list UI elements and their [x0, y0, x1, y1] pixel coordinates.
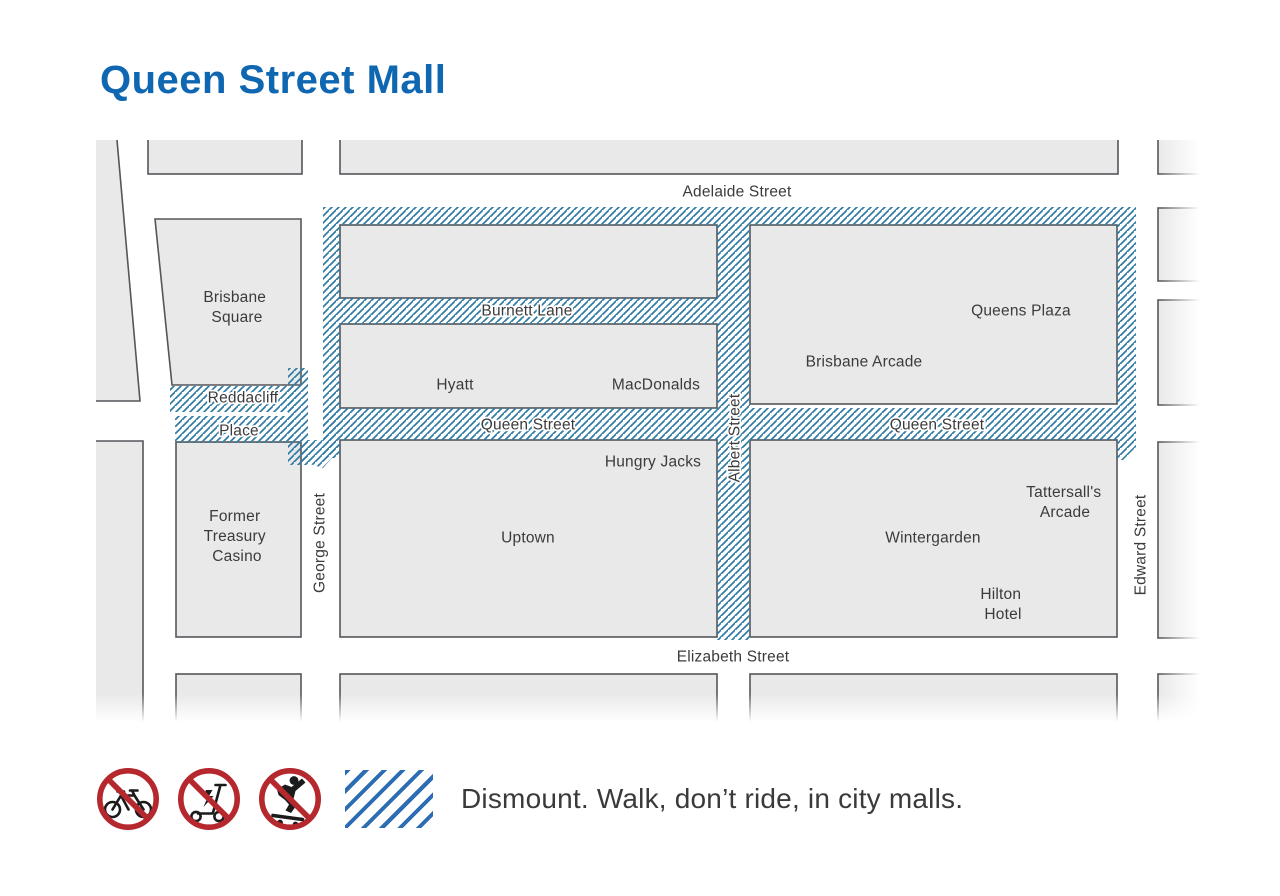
label-elizabeth-street: Elizabeth Street [677, 649, 790, 666]
mall-hatch-reddacliff-tail [288, 368, 308, 465]
label-macdonalds: MacDonalds [612, 377, 700, 394]
mall-hatch-adelaide-band [323, 207, 1136, 225]
block-north-adelaide-west [148, 130, 302, 174]
label-brisbane-arcade: Brisbane Arcade [806, 354, 923, 371]
label-reddacliff: Reddacliff [208, 390, 279, 407]
label-uptown: Uptown [501, 530, 555, 547]
mall-hatch-east-tail [1117, 440, 1136, 460]
legend: Dismount. Walk, don’t ride, in city mall… [95, 766, 963, 832]
label-adelaide-street: Adelaide Street [683, 184, 792, 201]
no-e-scooter-icon [176, 766, 242, 832]
label-albert-street: Albert Street [727, 393, 744, 482]
label-reddacliff-place: Place [219, 423, 259, 440]
block-north-adelaide-main [340, 130, 1118, 174]
legend-text: Dismount. Walk, don’t ride, in city mall… [461, 783, 963, 815]
queen-street-mall-map: Adelaide Street Elizabeth Street Burnett… [0, 0, 1280, 896]
page: Adelaide Street Elizabeth Street Burnett… [0, 0, 1280, 896]
label-burnett-lane: Burnett Lane [481, 303, 572, 320]
label-edward-street: Edward Street [1133, 494, 1150, 595]
dismount-zone-hatch-swatch [345, 770, 433, 828]
map-fade-bottom [96, 694, 1200, 722]
label-hungry-jacks: Hungry Jacks [605, 454, 701, 471]
mall-hatch-east-column [1117, 225, 1136, 408]
no-bicycle-icon [95, 766, 161, 832]
label-george-street: George Street [312, 493, 329, 593]
label-queen-street-west: Queen Street [481, 417, 576, 434]
label-queen-street-east: Queen Street [890, 417, 985, 434]
label-queens-plaza: Queens Plaza [971, 303, 1071, 320]
no-skateboard-icon [257, 766, 323, 832]
block-hyatt-macdonalds [340, 324, 717, 408]
label-former-treasury-casino: Former Treasury Casino [204, 508, 271, 565]
page-title: Queen Street Mall [100, 58, 446, 103]
block-north-of-burnett [340, 225, 717, 298]
label-hyatt: Hyatt [436, 377, 474, 394]
block-river-edge-lower [90, 441, 143, 722]
label-wintergarden: Wintergarden [885, 530, 980, 547]
map-fade-right [1158, 140, 1200, 722]
block-river-edge-upper [90, 140, 140, 401]
